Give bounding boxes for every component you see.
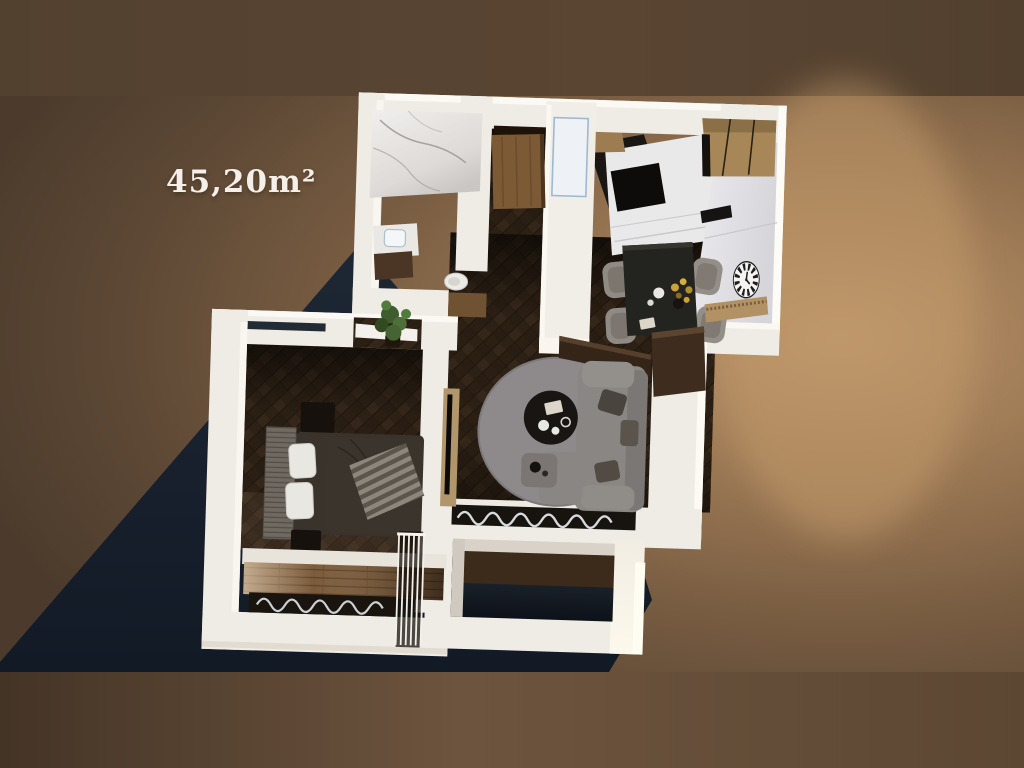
loggia-floor [451,583,614,622]
entry-loggia [451,539,615,622]
sink [384,229,406,247]
backdrop-bottom-band [0,672,1024,768]
marble-wall [370,110,483,201]
render-canvas [0,0,1024,768]
nightstand-1 [300,402,335,433]
pillow-1 [288,443,316,478]
bedroom [240,400,452,648]
sofa-cushion-3 [620,420,639,447]
loggia-inner-west-face [451,539,465,617]
double-bed [263,427,426,544]
bathroom-door-threshold [448,292,487,317]
entry-door-leaf [492,134,546,209]
side-table [521,453,558,488]
floor-plan-render: 45,20m² [0,0,1024,768]
glass-cabinet-door [552,118,588,197]
backdrop-wall-band [0,0,1024,96]
sofa-cushion-2 [594,459,621,483]
vanity-wood-cabinet [373,250,414,281]
entry-door [492,134,546,209]
pillow-2 [285,482,313,519]
railing-top-rail [397,534,426,535]
bedroom-shading [239,338,429,414]
bathroom-south-wall [352,287,449,318]
area-label: 45,20m² [166,164,316,200]
sofa-armrest-top [582,361,635,389]
tall-cabinets-top [702,118,776,134]
sofa-armrest-bottom [580,485,635,511]
